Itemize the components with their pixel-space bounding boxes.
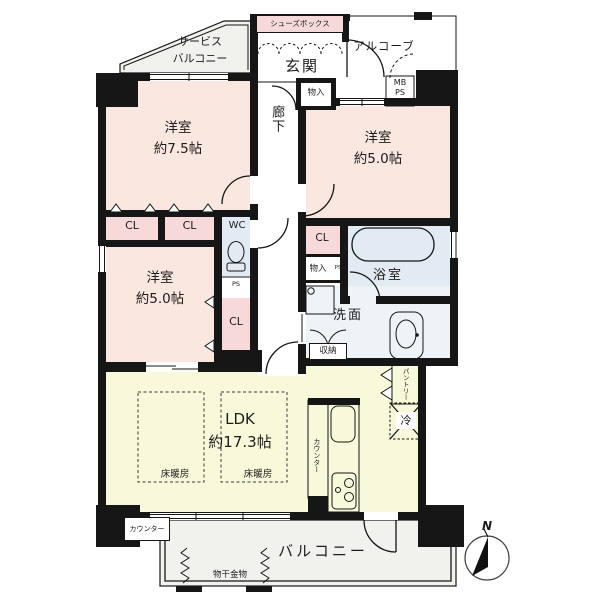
- closet-4-label: CL: [304, 230, 340, 246]
- oshiire-label: 収納: [309, 343, 347, 360]
- bottom-counter-label: カウンター: [124, 517, 170, 541]
- floor-heating-1-label: 床暖房: [148, 468, 202, 483]
- ps-1-label: PS: [222, 279, 250, 289]
- closet-1-label: CL: [106, 217, 158, 234]
- closet-2-label: CL: [165, 217, 214, 234]
- compass-north-label: N: [477, 517, 497, 536]
- wc-label: WC: [222, 218, 252, 234]
- closet-3-label: CL: [220, 313, 252, 330]
- floor-heating-2-label: 床暖房: [231, 468, 285, 483]
- entrance-label: 玄関: [262, 55, 342, 78]
- ldk-label: LDK 約17.3帖: [175, 408, 305, 455]
- entrance-storage-label: 物入: [299, 87, 333, 100]
- corridor-label: 廊下: [266, 84, 286, 154]
- balcony-label: バルコニー: [268, 540, 378, 563]
- fridge-label: 冷: [396, 412, 416, 429]
- bedroom-75-label: 洋室 約7.5帖: [128, 118, 228, 160]
- bedroom-50-right-label: 洋室 約5.0帖: [326, 128, 430, 170]
- kitchen-counter-label: カウンター: [311, 424, 322, 486]
- service-balcony-label: サービス バルコニー: [150, 33, 250, 67]
- pantry-label: パントリー: [400, 366, 410, 402]
- bath-label: 浴室: [358, 266, 418, 286]
- floor-plan: サービス バルコニー シューズボックス 玄関 アルコーブ MB PS 物入 洋室…: [0, 0, 600, 600]
- laundry-fitting-label: 物干金物: [198, 569, 262, 582]
- mb-ps-label: MB PS: [386, 78, 414, 99]
- shoe-box-label: シューズボックス: [256, 15, 344, 33]
- compass-icon: [465, 529, 509, 580]
- alcove-label: アルコーブ: [342, 38, 426, 56]
- ps-2-label: PS: [333, 264, 343, 273]
- mid-storage-label: 物入: [302, 263, 334, 276]
- washroom-label: 洗面: [316, 306, 380, 326]
- bedroom-50-left-label: 洋室 約5.0帖: [108, 268, 212, 310]
